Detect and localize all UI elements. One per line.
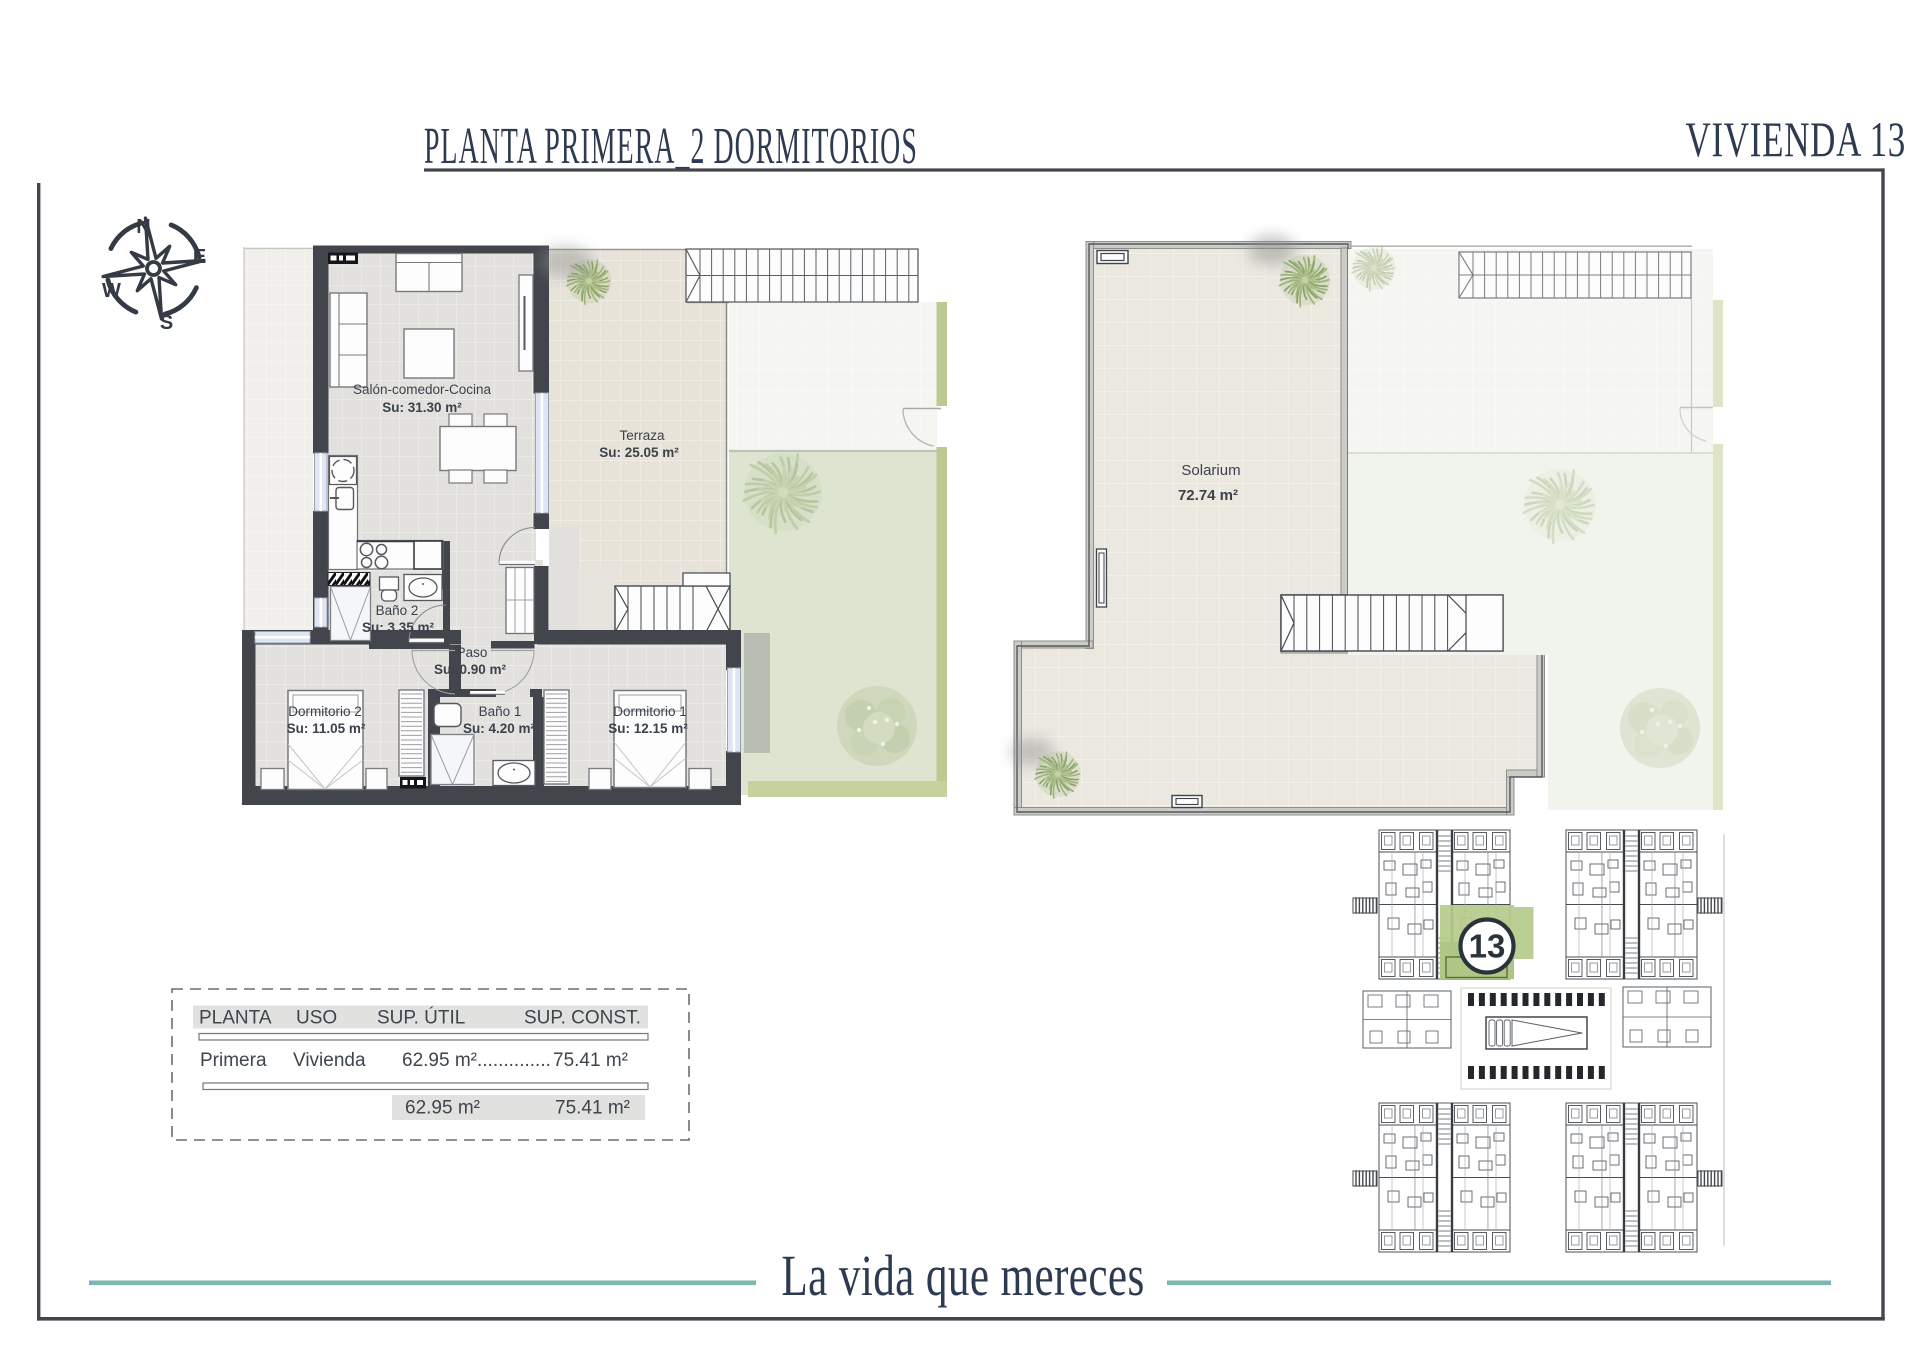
svg-text:Su: 3.35 m²: Su: 3.35 m²: [362, 620, 435, 635]
svg-text:62.95 m²..............: 62.95 m²..............: [402, 1050, 551, 1071]
svg-text:Su: 0.90 m²: Su: 0.90 m²: [434, 662, 507, 677]
svg-text:62.95 m²: 62.95 m²: [405, 1098, 480, 1119]
svg-text:La vida que mereces: La vida que mereces: [781, 1244, 1144, 1309]
svg-text:75.41 m²: 75.41 m²: [555, 1098, 630, 1119]
svg-text:Dormitorio 1: Dormitorio 1: [613, 704, 687, 719]
svg-text:SUP. CONST.: SUP. CONST.: [524, 1008, 641, 1029]
svg-text:Solarium: Solarium: [1181, 462, 1240, 479]
svg-text:Primera: Primera: [200, 1050, 267, 1071]
svg-text:Su: 4.20 m²: Su: 4.20 m²: [463, 721, 536, 736]
svg-text:75.41 m²: 75.41 m²: [553, 1050, 628, 1071]
svg-text:Su: 12.15 m²: Su: 12.15 m²: [608, 721, 688, 736]
svg-text:N: N: [136, 216, 150, 238]
svg-text:Su: 25.05 m²: Su: 25.05 m²: [599, 445, 679, 460]
svg-text:USO: USO: [296, 1008, 337, 1029]
svg-text:W: W: [102, 280, 121, 302]
svg-text:PLANTA: PLANTA: [199, 1008, 272, 1029]
svg-text:E: E: [193, 246, 206, 268]
svg-text:Dormitorio 2: Dormitorio 2: [288, 704, 362, 719]
svg-text:Su: 11.05 m²: Su: 11.05 m²: [287, 721, 366, 736]
svg-text:Salón-comedor-Cocina: Salón-comedor-Cocina: [353, 382, 492, 397]
svg-text:PLANTA PRIMERA_2 DORMITORIOS: PLANTA PRIMERA_2 DORMITORIOS: [424, 118, 918, 175]
svg-text:Su: 31.30 m²: Su: 31.30 m²: [382, 400, 462, 415]
svg-text:Baño 2: Baño 2: [376, 603, 419, 618]
svg-text:Vivienda: Vivienda: [293, 1050, 366, 1071]
svg-text:S: S: [160, 312, 173, 334]
svg-text:Paso: Paso: [457, 645, 488, 660]
svg-text:Baño 1: Baño 1: [479, 704, 522, 719]
svg-text:13: 13: [1469, 928, 1506, 965]
svg-text:72.74 m²: 72.74 m²: [1178, 487, 1238, 504]
svg-text:SUP. ÚTIL: SUP. ÚTIL: [377, 1007, 465, 1029]
svg-text:VIVIENDA 13: VIVIENDA 13: [1685, 113, 1906, 167]
svg-text:Terraza: Terraza: [619, 428, 665, 443]
